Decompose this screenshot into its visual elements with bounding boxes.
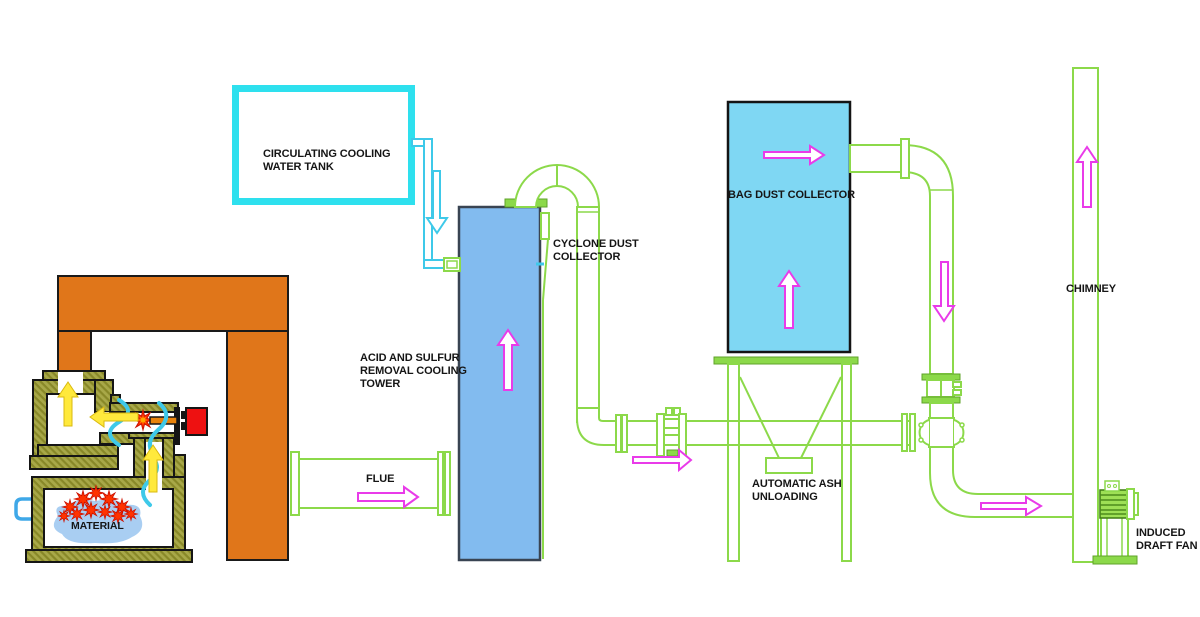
flue-flange-right	[438, 452, 443, 515]
burner-box	[186, 408, 207, 435]
fan-outlet-plate	[1127, 489, 1134, 519]
fan-label: INDUCED DRAFT FAN	[1136, 527, 1197, 553]
tank-label: CIRCULATING COOLING WATER TANK	[263, 148, 390, 174]
incinerator-furnace	[16, 371, 207, 562]
mid-duct	[577, 408, 915, 456]
frame-right-column	[227, 329, 288, 560]
chimney-body	[1073, 68, 1098, 562]
cooling-water-tank	[236, 89, 412, 202]
fan-stand	[1101, 517, 1128, 558]
flue-flange-left	[291, 452, 299, 515]
expansion-coupling	[922, 374, 961, 403]
damper-valve	[919, 418, 964, 447]
frame-beam	[58, 276, 288, 331]
material-label: MATERIAL	[71, 520, 124, 532]
fan-base	[1093, 556, 1137, 564]
cooling-water-pipe	[412, 139, 447, 268]
outlet-duct	[850, 68, 1098, 562]
induced-draft-fan	[1093, 481, 1138, 564]
cyclone-body	[541, 213, 549, 239]
bag-collector-label: BAG DUST COLLECTOR	[728, 189, 850, 202]
hopper-support-bar	[714, 357, 858, 364]
tower-label: ACID AND SULFUR REMOVAL COOLING TOWER	[360, 352, 467, 390]
cooling-tower-body	[459, 207, 540, 560]
ash-discharge-box	[766, 458, 812, 473]
ash-hopper	[728, 364, 851, 561]
ash-unloading-label: AUTOMATIC ASH UNLOADING	[752, 478, 842, 504]
diagram-canvas	[0, 0, 1200, 617]
flue-flange-right	[445, 452, 450, 515]
cyclone-label: CYCLONE DUST COLLECTOR	[553, 238, 639, 264]
frame-left-column	[58, 329, 91, 372]
chimney-label: CHIMNEY	[1066, 283, 1116, 296]
hopper-leg-left	[728, 364, 739, 561]
burner-duct-top-wall	[110, 403, 178, 412]
flue-label: FLUE	[366, 473, 394, 486]
burner-mount-plate	[174, 407, 180, 445]
door-handle	[16, 499, 31, 519]
hopper-leg-right	[842, 364, 851, 561]
duct-valve	[657, 408, 686, 456]
furnace-base	[26, 550, 192, 562]
incinerator-flue-gas-treatment-diagram: CIRCULATING COOLING WATER TANK ACID AND …	[0, 0, 1200, 617]
